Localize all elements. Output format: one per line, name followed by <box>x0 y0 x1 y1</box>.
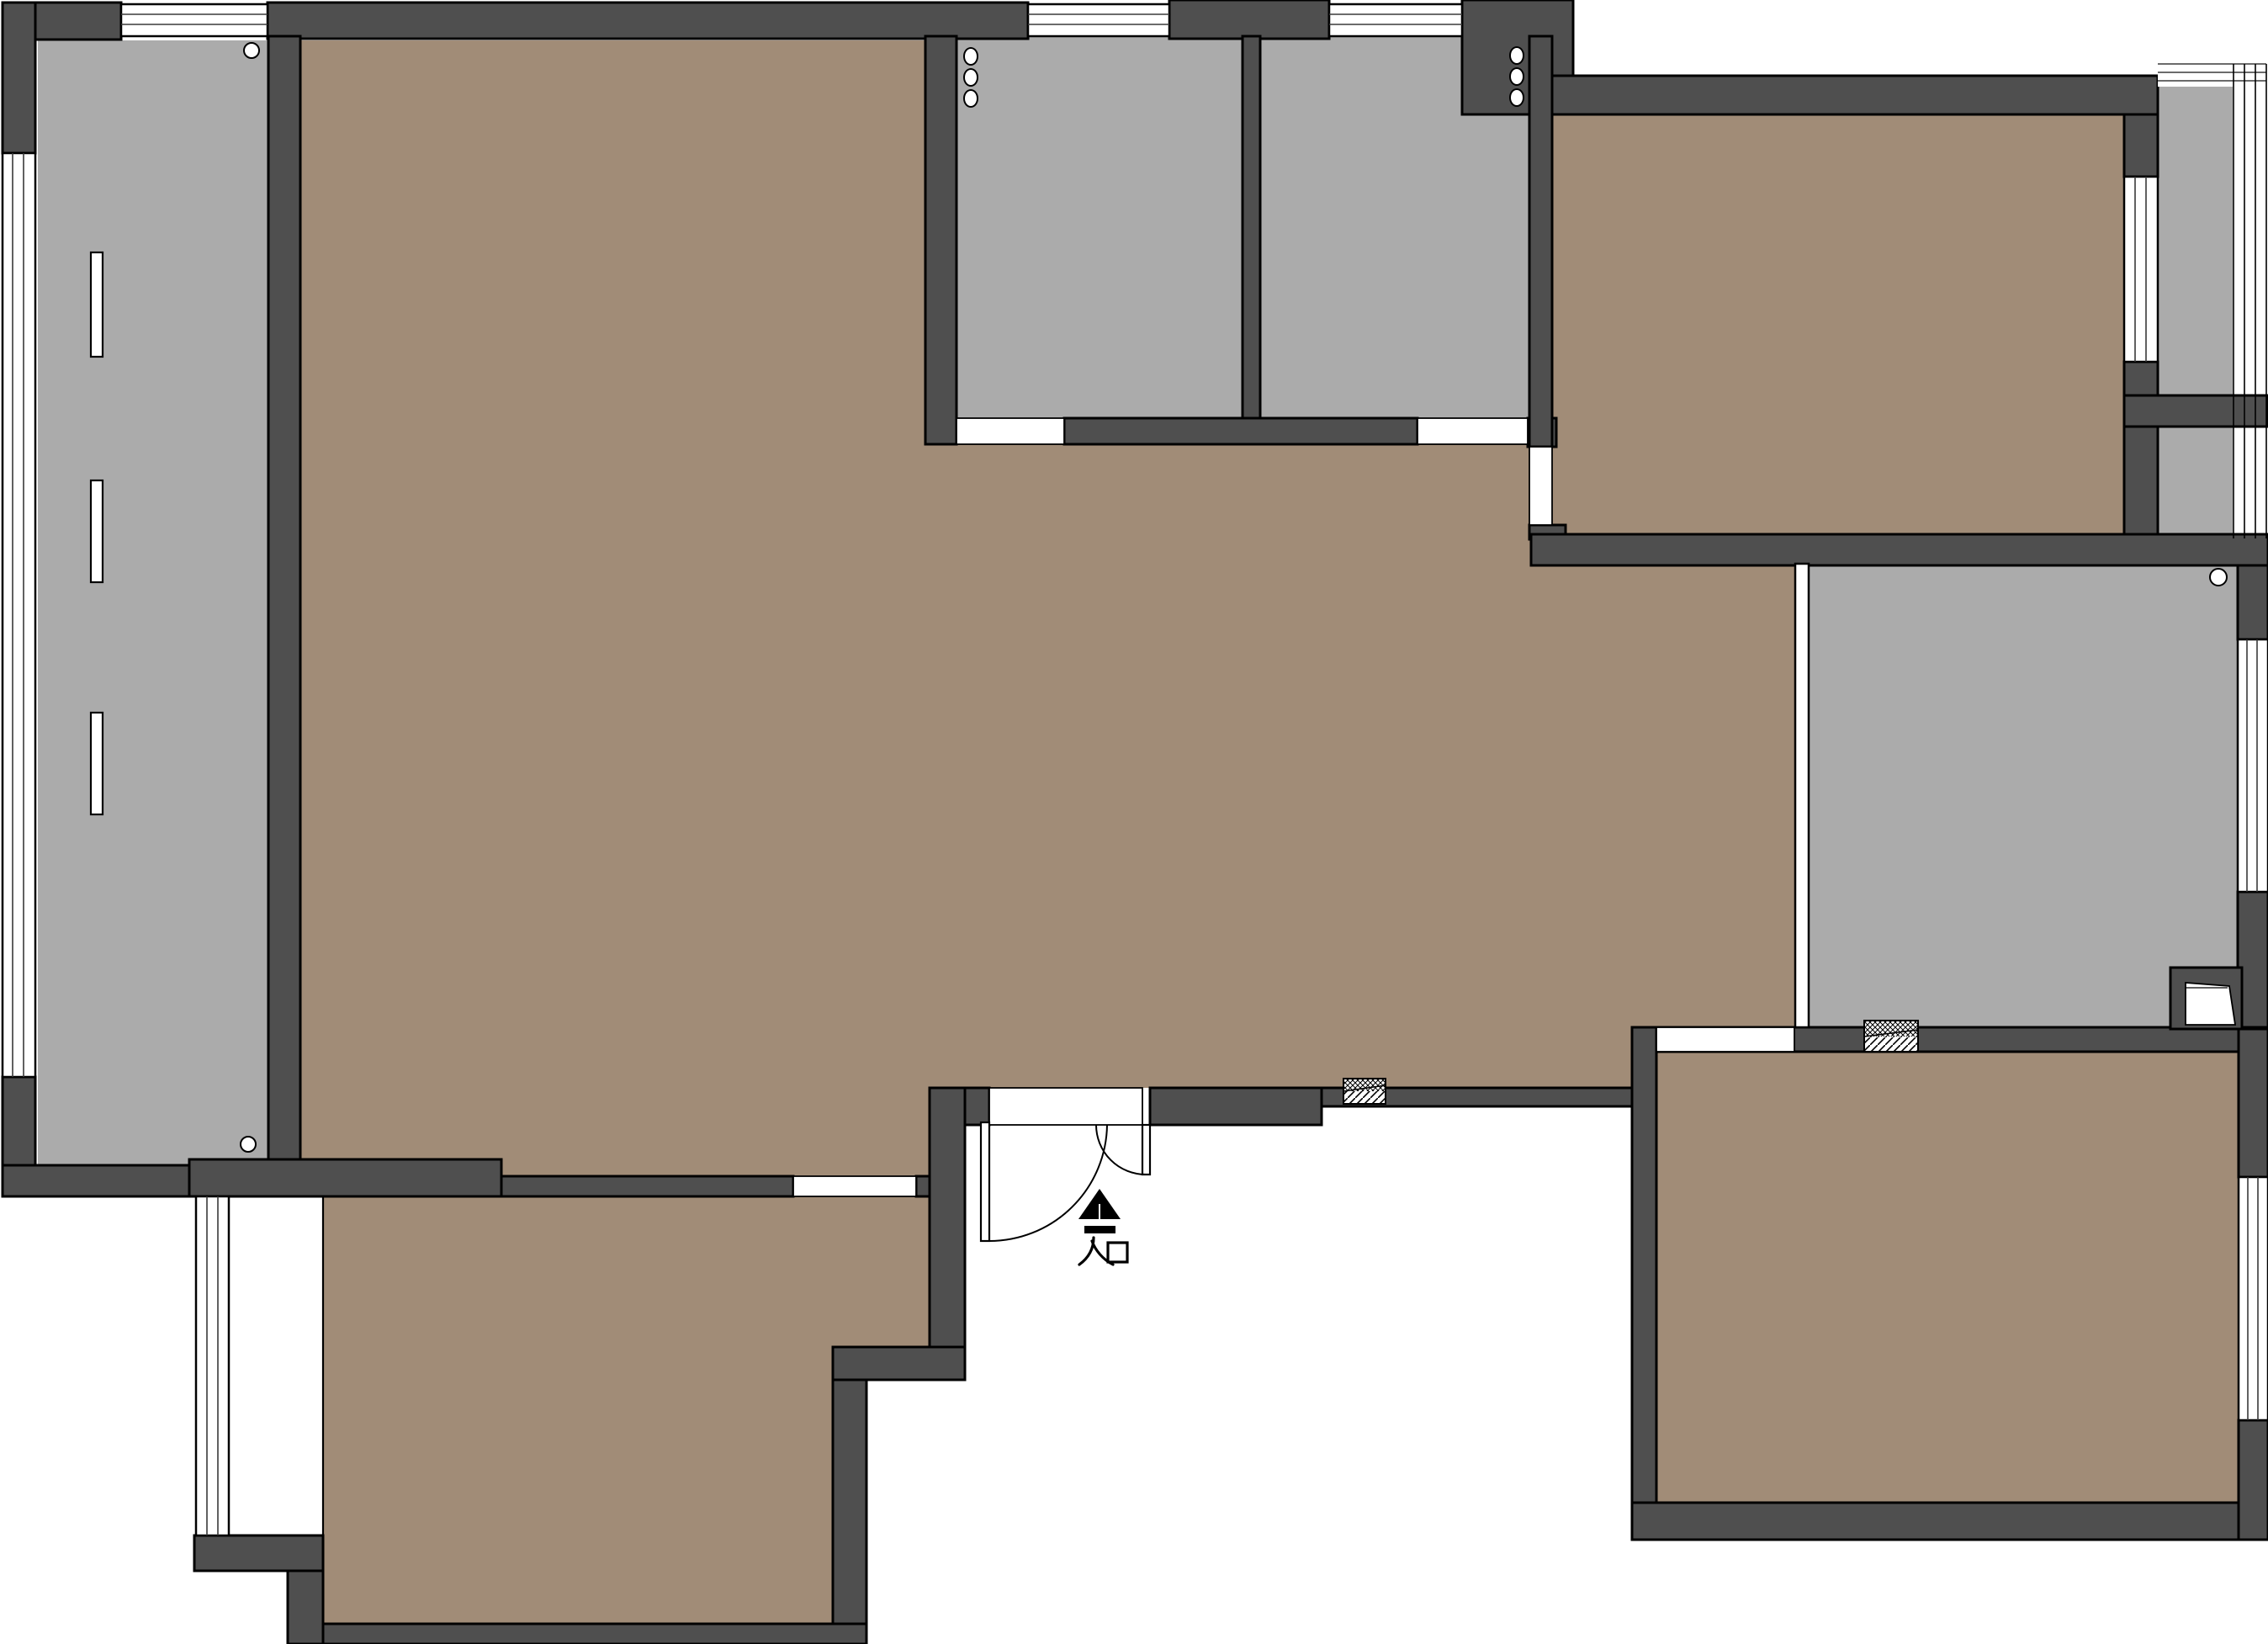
entrance-arrow-icon <box>1078 1189 1121 1233</box>
vent-dot-bath-left-3 <box>964 90 978 107</box>
floor-plan-page: { "plan": { "type": "residential-floor-p… <box>0 0 2268 1644</box>
floors <box>38 36 2239 1624</box>
door-opening-kitchen <box>793 1176 916 1196</box>
balcony-right-floor <box>2158 87 2233 536</box>
threshold-hatch-entrance <box>1343 1079 1386 1104</box>
window-slider-mark-2 <box>91 480 103 582</box>
wall-top-pier-bathrooms <box>1169 0 1329 39</box>
study-recess-door <box>2170 968 2242 1029</box>
threshold-hatch-study <box>1864 1021 1918 1052</box>
window-slider-mark-3 <box>91 713 103 814</box>
wall-bedroom-tr-right-upper <box>2124 114 2158 177</box>
wall-entrance-right <box>1150 1088 1322 1125</box>
frame-balcony-right-lines <box>2234 64 2266 538</box>
dining-area-floor <box>930 418 1552 1088</box>
wall-balcony-right-transom <box>2124 395 2268 427</box>
door-opening-bathroom-right <box>1417 418 1528 444</box>
window-corridor-left <box>196 1196 229 1535</box>
wall-bedroom-br-left <box>1632 1027 1656 1540</box>
wall-bedroom-tr-left <box>1529 36 1552 447</box>
window-bedroom-br-right <box>2239 1177 2268 1420</box>
frame-balcony-right-top <box>2158 61 2268 87</box>
wall-bathroom-left-side <box>925 36 956 444</box>
wall-corridor-step <box>194 1535 323 1571</box>
wall-balcony-right-side-lower <box>2124 427 2158 534</box>
window-bathroom-left <box>1028 4 1169 36</box>
vent-dot-bath-left-2 <box>964 69 978 86</box>
wall-kitchen-right-lower <box>833 1380 866 1624</box>
window-slider-mark-1 <box>91 252 103 357</box>
window-balcony-top <box>121 4 268 36</box>
wall-top-left-corner-v <box>3 3 35 153</box>
floor-plan-canvas <box>0 0 2268 1644</box>
balcony-left-floor <box>38 40 268 1169</box>
vent-dot-bath-right-3 <box>1510 89 1523 106</box>
wall-kitchen-top-stub <box>916 1176 930 1196</box>
vent-dot-bath-right-2 <box>1510 68 1523 85</box>
entrance-door-leaf-large <box>981 1122 989 1241</box>
bathroom-left-floor <box>956 36 1243 418</box>
door-opening-bathroom-left <box>956 418 1064 444</box>
wall-kitchen-right-upper <box>930 1088 965 1380</box>
entrance-door-arc-small <box>1096 1125 1146 1175</box>
drain-dot-balcony-top <box>244 43 259 58</box>
window-left-edge <box>3 153 35 1077</box>
vent-dot-bath-left-1 <box>964 48 978 65</box>
wall-bedroom-br-bottom <box>1632 1503 2268 1540</box>
bedroom-bottom-right-floor <box>1656 1050 2239 1503</box>
wall-top-right-band <box>1550 76 2158 114</box>
bedroom-top-right-floor <box>1550 114 2129 538</box>
door-opening-bedroom-br <box>1656 1027 1794 1052</box>
drain-dot-balcony-bottom <box>241 1137 256 1152</box>
wall-kitchen-bottom <box>323 1624 866 1644</box>
window-bathroom-right <box>1329 4 1462 36</box>
entrance-door-arc-large <box>989 1125 1107 1241</box>
drain-dot-study <box>2210 569 2227 586</box>
window-bedroom-tr-right <box>2124 177 2158 362</box>
partition-study-glass <box>1795 564 1809 1027</box>
wall-kitchen-left-lower <box>288 1571 323 1644</box>
entrance-door-leaf-small <box>1142 1125 1150 1175</box>
wall-balcony-left-inner <box>268 36 300 1169</box>
wall-bedroom-tr-bottom <box>1531 534 2268 565</box>
wall-bedroom-br-right-lower <box>2239 1420 2268 1540</box>
wall-bedroom-br-right-upper <box>2239 1029 2268 1177</box>
wall-bathroom-divider <box>1243 36 1260 418</box>
study-room-floor <box>1809 564 2239 1027</box>
wall-kitchen-top-thin <box>501 1176 793 1196</box>
door-opening-entrance <box>989 1088 1142 1125</box>
wall-bathrooms-bottom <box>1064 418 1417 444</box>
window-study-right <box>2238 639 2268 892</box>
wall-entrance-left <box>965 1088 989 1125</box>
wall-kitchen-top-thick <box>189 1159 501 1196</box>
vent-dot-bath-right-1 <box>1510 47 1523 64</box>
door-opening-bedroom-tr <box>1529 447 1552 525</box>
hallway-floor <box>1552 525 1795 1088</box>
living-room-floor <box>300 40 930 1176</box>
wall-study-right-upper <box>2238 565 2268 639</box>
wall-kitchen-jog <box>833 1347 965 1380</box>
wall-top-main <box>268 3 1028 39</box>
